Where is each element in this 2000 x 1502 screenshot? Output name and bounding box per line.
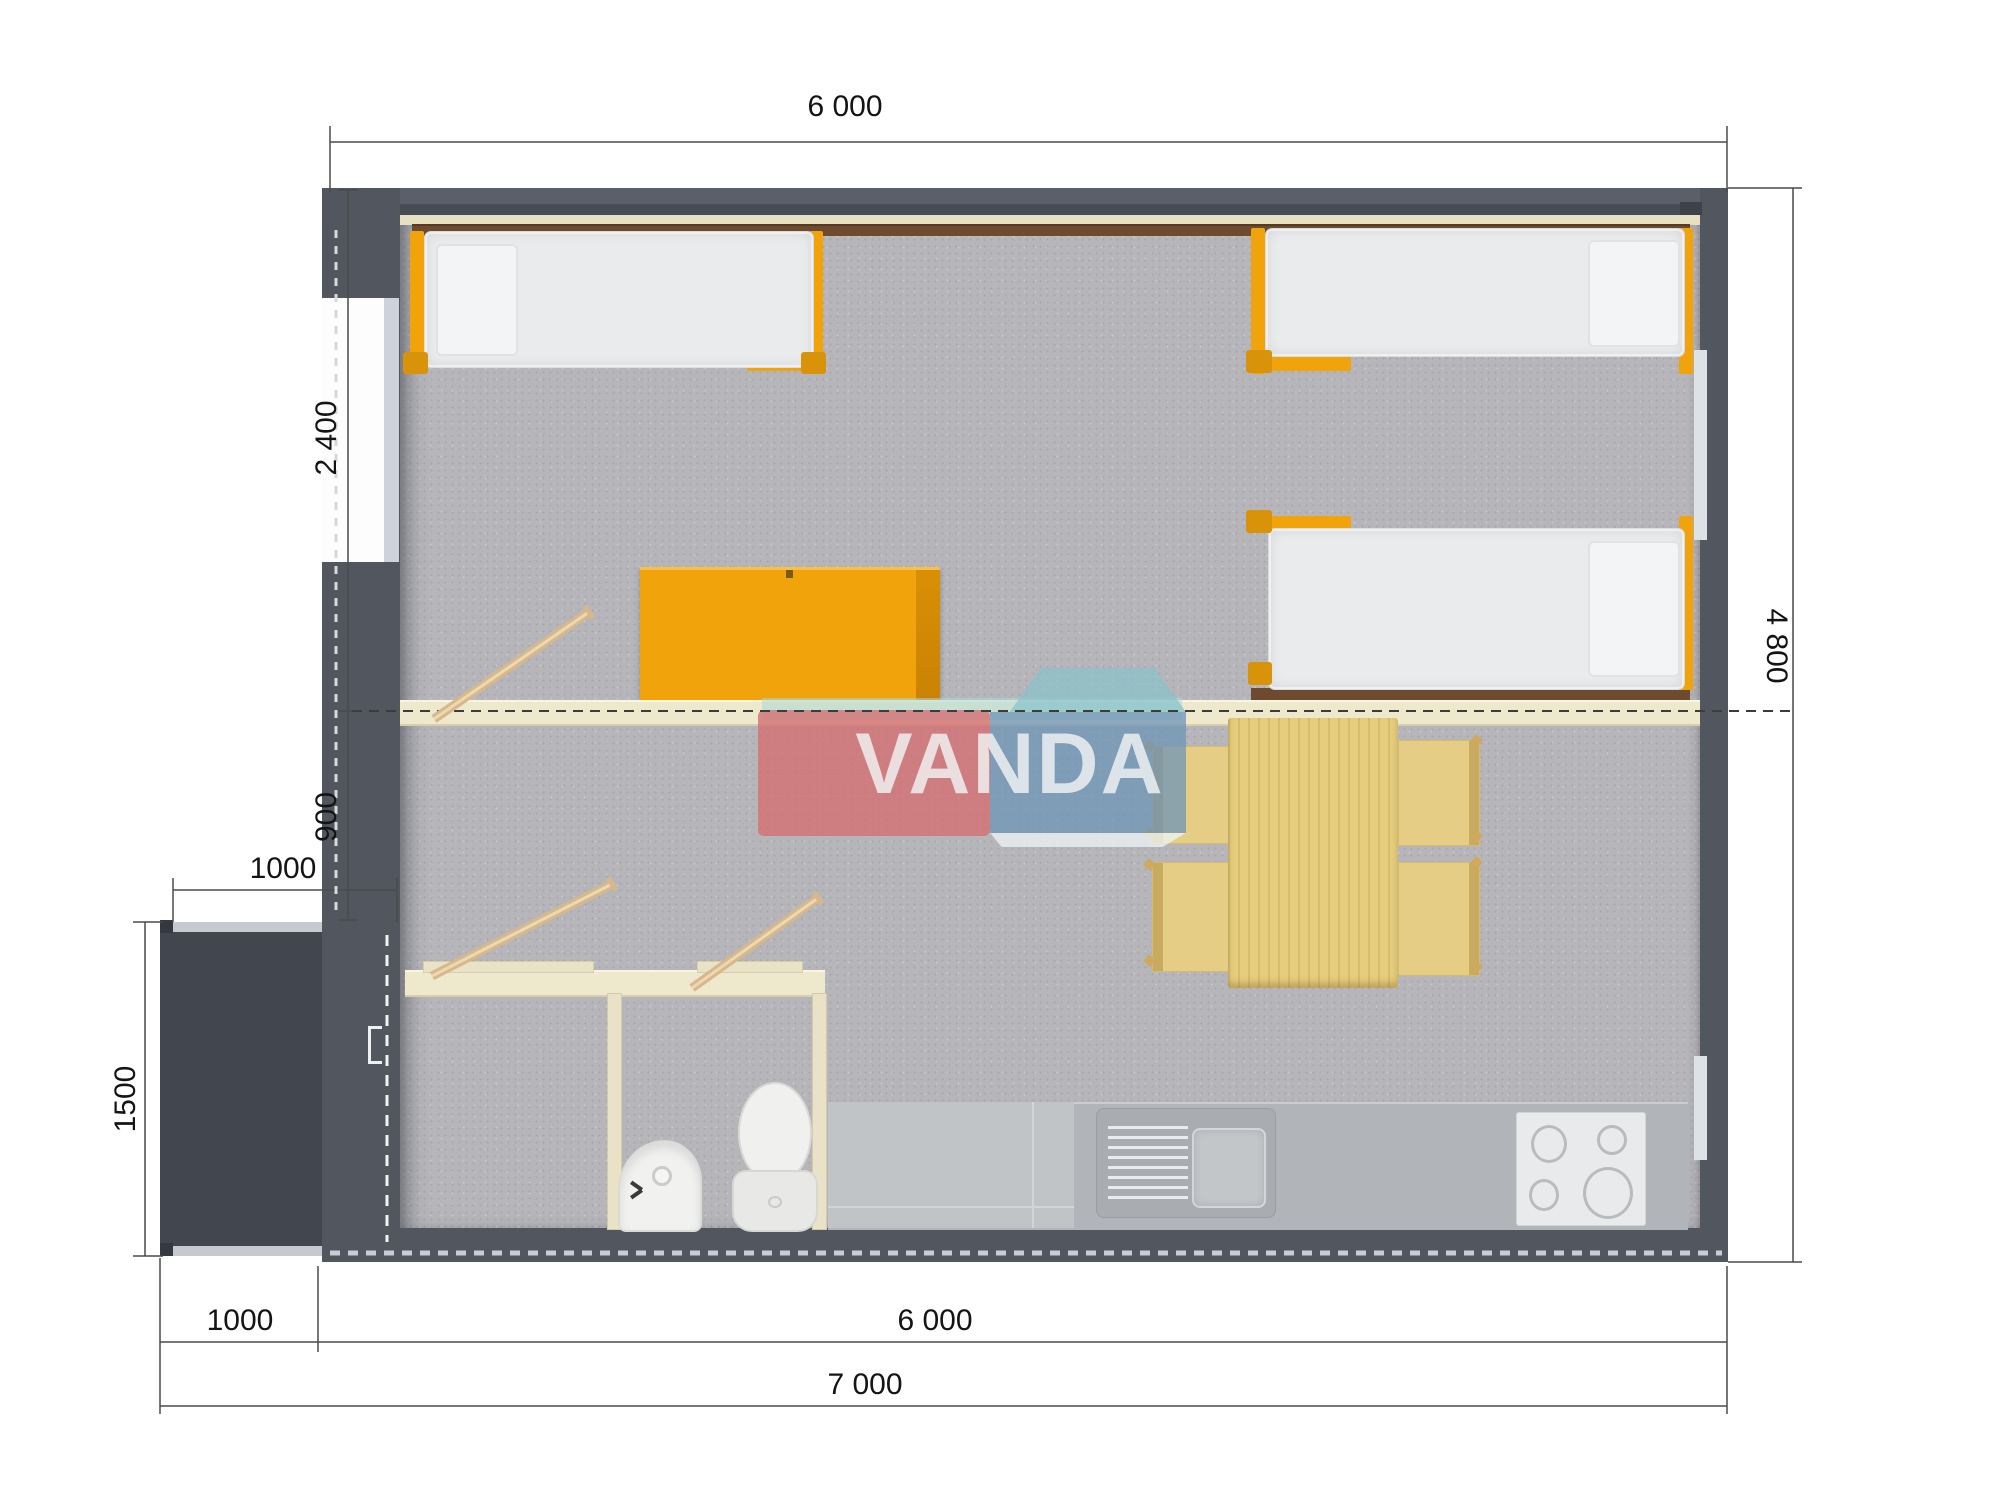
counter-seam xyxy=(828,1206,1074,1208)
drainboard-line xyxy=(1108,1176,1188,1179)
bed-middle-right-foot xyxy=(1246,510,1272,533)
chair xyxy=(1152,862,1232,972)
wardrobe-side-face xyxy=(916,570,940,703)
bed-middle-right-pillow xyxy=(1588,541,1680,677)
bed-top-left-foot xyxy=(801,352,826,374)
dim-label-porch-width-bottom: 1000 xyxy=(160,1302,320,1340)
bathroom-wall-ledge xyxy=(423,961,594,973)
counter-seam xyxy=(1032,1102,1034,1228)
drainboard-line xyxy=(1108,1126,1188,1129)
dim-label-bedroom-depth: 2 400 xyxy=(308,358,346,518)
chair xyxy=(1398,740,1480,846)
chair xyxy=(1398,862,1480,976)
wardrobe xyxy=(640,567,940,703)
bed-top-right-frame xyxy=(1265,356,1351,371)
window-right-bedroom xyxy=(1694,350,1707,540)
porch-step-bottom xyxy=(160,1246,322,1256)
burner-icon xyxy=(1583,1167,1633,1219)
wall-bottom xyxy=(322,1228,1728,1262)
drainboard-line xyxy=(1108,1156,1188,1159)
wall-corner-step xyxy=(1680,202,1702,215)
washbasin-icon xyxy=(618,1140,702,1232)
bathroom-wall-ledge xyxy=(697,961,803,973)
drainboard-line xyxy=(1108,1136,1188,1139)
dining-table xyxy=(1228,718,1398,988)
bed-top-left-pillow xyxy=(436,244,518,356)
porch-post-bottom xyxy=(160,1243,173,1256)
chair-backrest xyxy=(1469,863,1479,975)
dim-label-house-width: 6 000 xyxy=(855,1302,1015,1340)
watermark-logo: VANDA xyxy=(852,708,1168,820)
logo-cube-icon xyxy=(990,833,1186,847)
kitchen-sink-icon xyxy=(1096,1108,1276,1218)
stove-icon xyxy=(1516,1112,1646,1226)
burner-icon xyxy=(1531,1125,1567,1163)
dim-label-total-width: 7 000 xyxy=(785,1366,945,1404)
chair-backrest xyxy=(1469,741,1479,845)
kitchen-cabinet xyxy=(828,1102,1074,1228)
drainboard-line xyxy=(1108,1146,1188,1149)
porch xyxy=(160,922,322,1256)
dim-label-porch-width-top: 1000 xyxy=(203,850,363,888)
floor-plan: VANDA xyxy=(0,0,2000,1502)
bed-middle-right-foot xyxy=(1248,662,1272,685)
drainboard-line xyxy=(1108,1186,1188,1189)
drainboard-line xyxy=(1108,1196,1188,1199)
window-left-glass xyxy=(384,298,399,562)
window-right-kitchen xyxy=(1694,1056,1707,1160)
drainboard-line xyxy=(1108,1166,1188,1169)
dim-label-house-depth: 4 800 xyxy=(1757,566,1795,726)
entry-door-handle-icon xyxy=(368,1026,382,1064)
wall-top xyxy=(322,188,1728,215)
burner-icon xyxy=(1597,1125,1627,1155)
toilet-flush-button xyxy=(768,1196,782,1208)
porch-step-top xyxy=(160,922,322,932)
wardrobe-handle-icon xyxy=(786,570,793,578)
dim-label-porch-depth: 1500 xyxy=(107,1019,145,1179)
bed-top-left-foot xyxy=(403,352,428,374)
faucet-icon xyxy=(652,1166,672,1186)
bed-top-right-pillow xyxy=(1588,240,1680,347)
sink-basin xyxy=(1192,1128,1266,1208)
toilet-icon xyxy=(738,1082,812,1184)
burner-icon xyxy=(1529,1179,1559,1211)
dim-label-top-width: 6 000 xyxy=(765,88,925,126)
bed-top-right-foot xyxy=(1246,350,1272,373)
chair-backrest xyxy=(1153,863,1163,971)
porch-post-top xyxy=(160,920,173,933)
